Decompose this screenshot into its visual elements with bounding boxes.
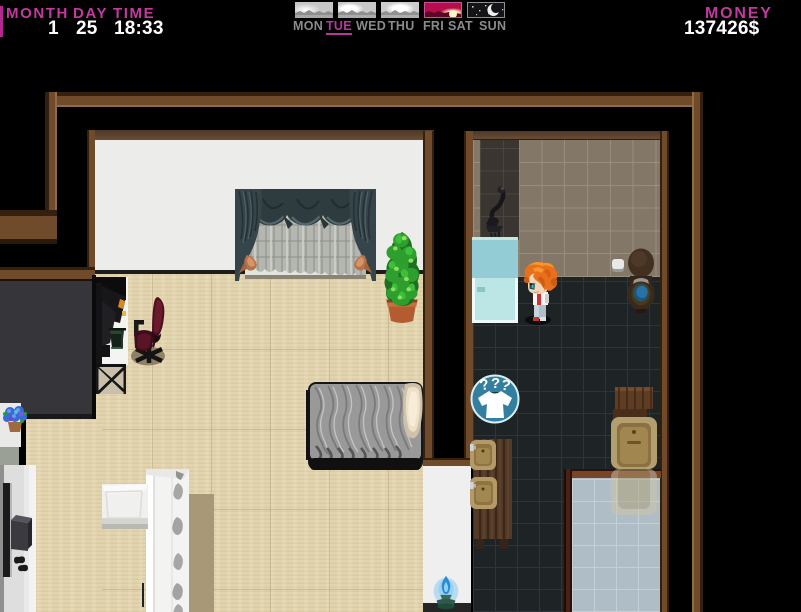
svg-text:?: ? (491, 375, 500, 392)
